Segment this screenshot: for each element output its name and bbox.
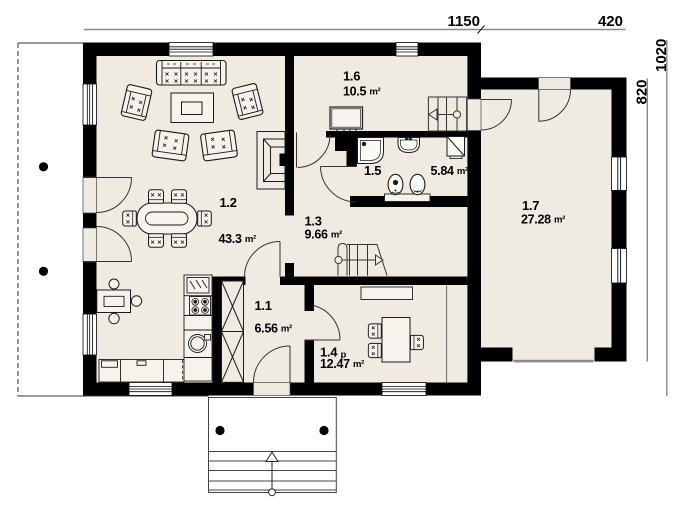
svg-text:27.28 m²: 27.28 m² [521,213,565,227]
svg-text:1.3: 1.3 [305,214,322,229]
svg-text:12.47 m²: 12.47 m² [320,357,364,371]
svg-text:5.84 m²: 5.84 m² [431,164,468,178]
svg-text:1.1: 1.1 [255,298,272,313]
svg-text:1.5: 1.5 [364,163,381,178]
svg-text:420: 420 [598,13,623,30]
svg-text:6.56 m²: 6.56 m² [255,322,292,336]
svg-text:43.3 m²: 43.3 m² [219,232,256,246]
svg-text:1150: 1150 [447,13,480,30]
svg-text:1020: 1020 [653,39,670,72]
svg-text:1.6: 1.6 [343,69,360,84]
svg-text:1.7: 1.7 [522,198,539,213]
svg-text:1.2: 1.2 [220,195,237,210]
svg-text:820: 820 [634,79,651,104]
svg-text:10.5 m²: 10.5 m² [343,85,380,99]
svg-text:9.66 m²: 9.66 m² [305,228,342,242]
